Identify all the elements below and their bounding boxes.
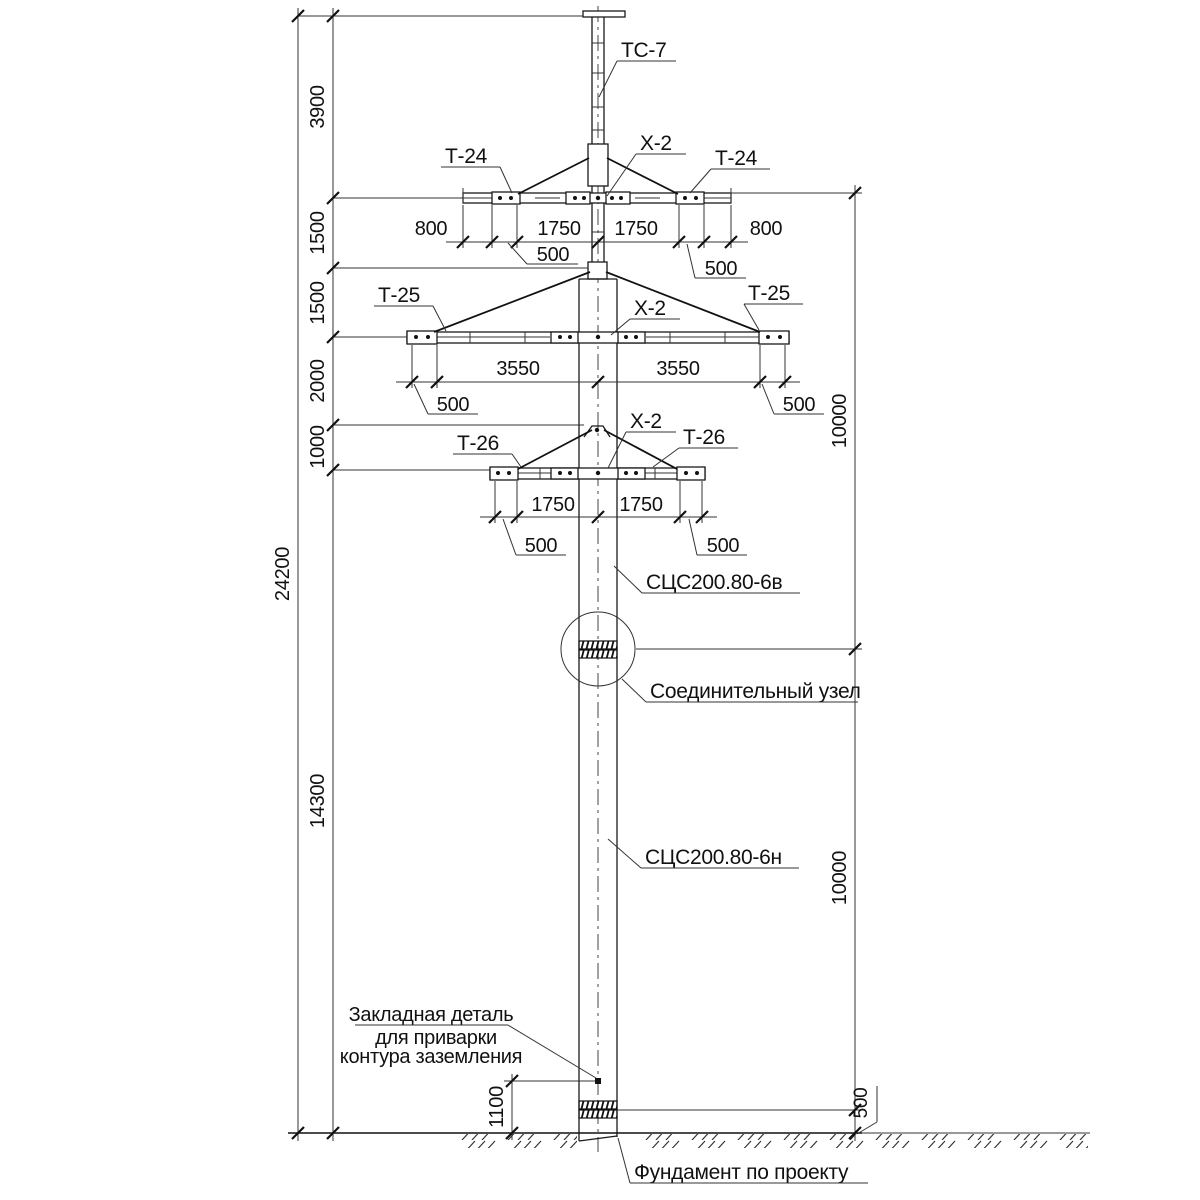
traverse2-left-end-box [407, 331, 437, 344]
bolt [634, 471, 638, 475]
dim-1500-b: 1500 [307, 281, 329, 324]
bolt [766, 335, 770, 339]
traverse3-right-connector [618, 468, 645, 479]
bolt [568, 471, 572, 475]
dim-1500-a: 1500 [307, 211, 329, 254]
traverse2-right-brace [606, 272, 760, 332]
dim-1100: 1100 [486, 1086, 508, 1128]
joint-band-lower [579, 650, 617, 658]
label-leader [618, 1138, 630, 1183]
bolt [496, 471, 500, 475]
dim-500-embed: 500 [851, 1088, 872, 1119]
label-leader [500, 167, 512, 193]
label-traverse3-left: Т-26 [457, 432, 499, 455]
leader-line [762, 384, 774, 414]
label-pole-lower: СЦС200.80-6н [645, 846, 782, 869]
bolt [596, 471, 600, 475]
dim-500-l2-right: 500 [783, 394, 816, 416]
dim-left-segments: 3900 1500 1500 2000 1000 14300 [307, 8, 339, 1141]
label-leader [622, 679, 646, 702]
dim-1750-l3-left: 1750 [531, 494, 574, 516]
label-connector-l1: Х-2 [640, 132, 672, 155]
dim-500-l1-left: 500 [537, 244, 570, 266]
mast-brace-bracket [588, 144, 608, 186]
label-leader [512, 454, 521, 467]
label-traverse2-right: Т-25 [748, 282, 790, 305]
leader-line [414, 384, 428, 414]
traverse1-left-connector [566, 192, 590, 204]
dim-3550-right: 3550 [656, 358, 699, 380]
dim-500-l3-right: 500 [707, 535, 740, 557]
dim-overall-height: 24200 [272, 547, 294, 601]
dim-10000-lower: 10000 [829, 851, 851, 905]
label-leader [599, 61, 617, 97]
label-embedded-line3: контура заземления [340, 1046, 522, 1068]
dim-1000: 1000 [307, 425, 329, 468]
bolt [778, 335, 782, 339]
traverse1-right-brace [607, 158, 678, 194]
label-pole-upper: СЦС200.80-6в [646, 571, 782, 594]
extension-lines [298, 16, 862, 1110]
bolt [694, 196, 698, 200]
bolt [624, 335, 628, 339]
ground-hatch-left [460, 1134, 577, 1148]
bolt [610, 196, 614, 200]
label-connector-l2: Х-2 [634, 297, 666, 320]
traverse3-left-connector [551, 468, 578, 479]
label-top-section: ТС-7 [621, 39, 666, 62]
traverse1-right-connector [606, 192, 630, 204]
dim-1750-l1-left: 1750 [537, 218, 580, 240]
bolt [634, 335, 638, 339]
traverse3-right-end-box [677, 467, 705, 480]
dim-3550-left: 3550 [496, 358, 539, 380]
dim-800-right: 800 [750, 218, 783, 240]
bolt [619, 196, 623, 200]
dim-800-left: 800 [415, 218, 448, 240]
label-traverse1-right: Т-24 [715, 147, 758, 170]
bottom-band-lower [579, 1110, 617, 1118]
label-leader [690, 169, 711, 193]
traverse1-left-end-box [492, 192, 520, 204]
leader-line [503, 519, 516, 555]
traverse3-left-end-box [490, 467, 518, 480]
label-joint: Соединительный узел [650, 680, 861, 703]
ground-hatch-right [640, 1134, 1088, 1148]
anchor-bolt [595, 428, 599, 432]
traverse1-left-brace [518, 158, 589, 194]
anchor-block-level2-braces [588, 262, 607, 279]
label-leader [614, 566, 642, 593]
bolt [414, 335, 418, 339]
bolt [683, 196, 687, 200]
bolt [426, 335, 430, 339]
label-leader [433, 306, 446, 331]
bolt [568, 335, 572, 339]
dim-2000: 2000 [307, 359, 329, 402]
dim-10000-upper: 10000 [829, 394, 851, 448]
bolt [573, 196, 577, 200]
dim-level3: 1750 1750 500 500 [480, 494, 747, 557]
traverse2-right-connector [618, 332, 645, 343]
dim-1750-l1-right: 1750 [614, 218, 657, 240]
pole-elevation-drawing: 24200 3900 1500 1500 2000 1000 14300 100… [0, 0, 1200, 1200]
bolt [582, 196, 586, 200]
bolt [558, 471, 562, 475]
label-traverse2-left: Т-25 [378, 284, 420, 307]
label-leader [608, 839, 641, 868]
label-foundation: Фундамент по проекту [634, 1161, 849, 1184]
label-traverse1-left: Т-24 [445, 145, 488, 168]
dim-14300: 14300 [307, 774, 329, 828]
dim-500-l1-right: 500 [705, 258, 738, 280]
dim-left-overall: 24200 [272, 8, 304, 1141]
leader-line [687, 244, 695, 278]
traverse1-right-end-box [676, 192, 704, 204]
bolt [624, 471, 628, 475]
dim-500-l2-left: 500 [437, 394, 470, 416]
label-connector-l3: Х-2 [630, 410, 662, 433]
label-embedded-line1: Закладная деталь [349, 1004, 514, 1026]
bolt [596, 196, 600, 200]
pole-cap-plate [583, 11, 625, 17]
embedded-plate-marker [595, 1078, 601, 1084]
dim-3900: 3900 [307, 85, 329, 128]
dim-right: 10000 10000 500 [829, 185, 877, 1141]
traverse3-left-brace [518, 430, 592, 469]
dim-1750-l3-right: 1750 [619, 494, 662, 516]
traverse3-right-brace [604, 430, 677, 469]
bolt [558, 335, 562, 339]
pole-body [561, 6, 635, 1152]
bolt [498, 196, 502, 200]
label-traverse3-right: Т-26 [683, 426, 725, 449]
traverse2-left-brace [434, 272, 590, 332]
bolt [509, 196, 513, 200]
bolt [507, 471, 511, 475]
ground [288, 1133, 1090, 1148]
joint-band-upper [579, 641, 617, 649]
bolt [596, 335, 600, 339]
leader-line [689, 519, 697, 555]
drawing-sheet: 24200 3900 1500 1500 2000 1000 14300 100… [0, 0, 1200, 1200]
traverse2-right-end-box [759, 331, 789, 344]
bolt [684, 471, 688, 475]
dim-ground-clearance: 1100 [486, 1074, 518, 1140]
bolt [695, 471, 699, 475]
traverse2-left-connector [551, 332, 578, 343]
bottom-band-upper [579, 1101, 617, 1109]
dim-500-l3-left: 500 [525, 535, 558, 557]
